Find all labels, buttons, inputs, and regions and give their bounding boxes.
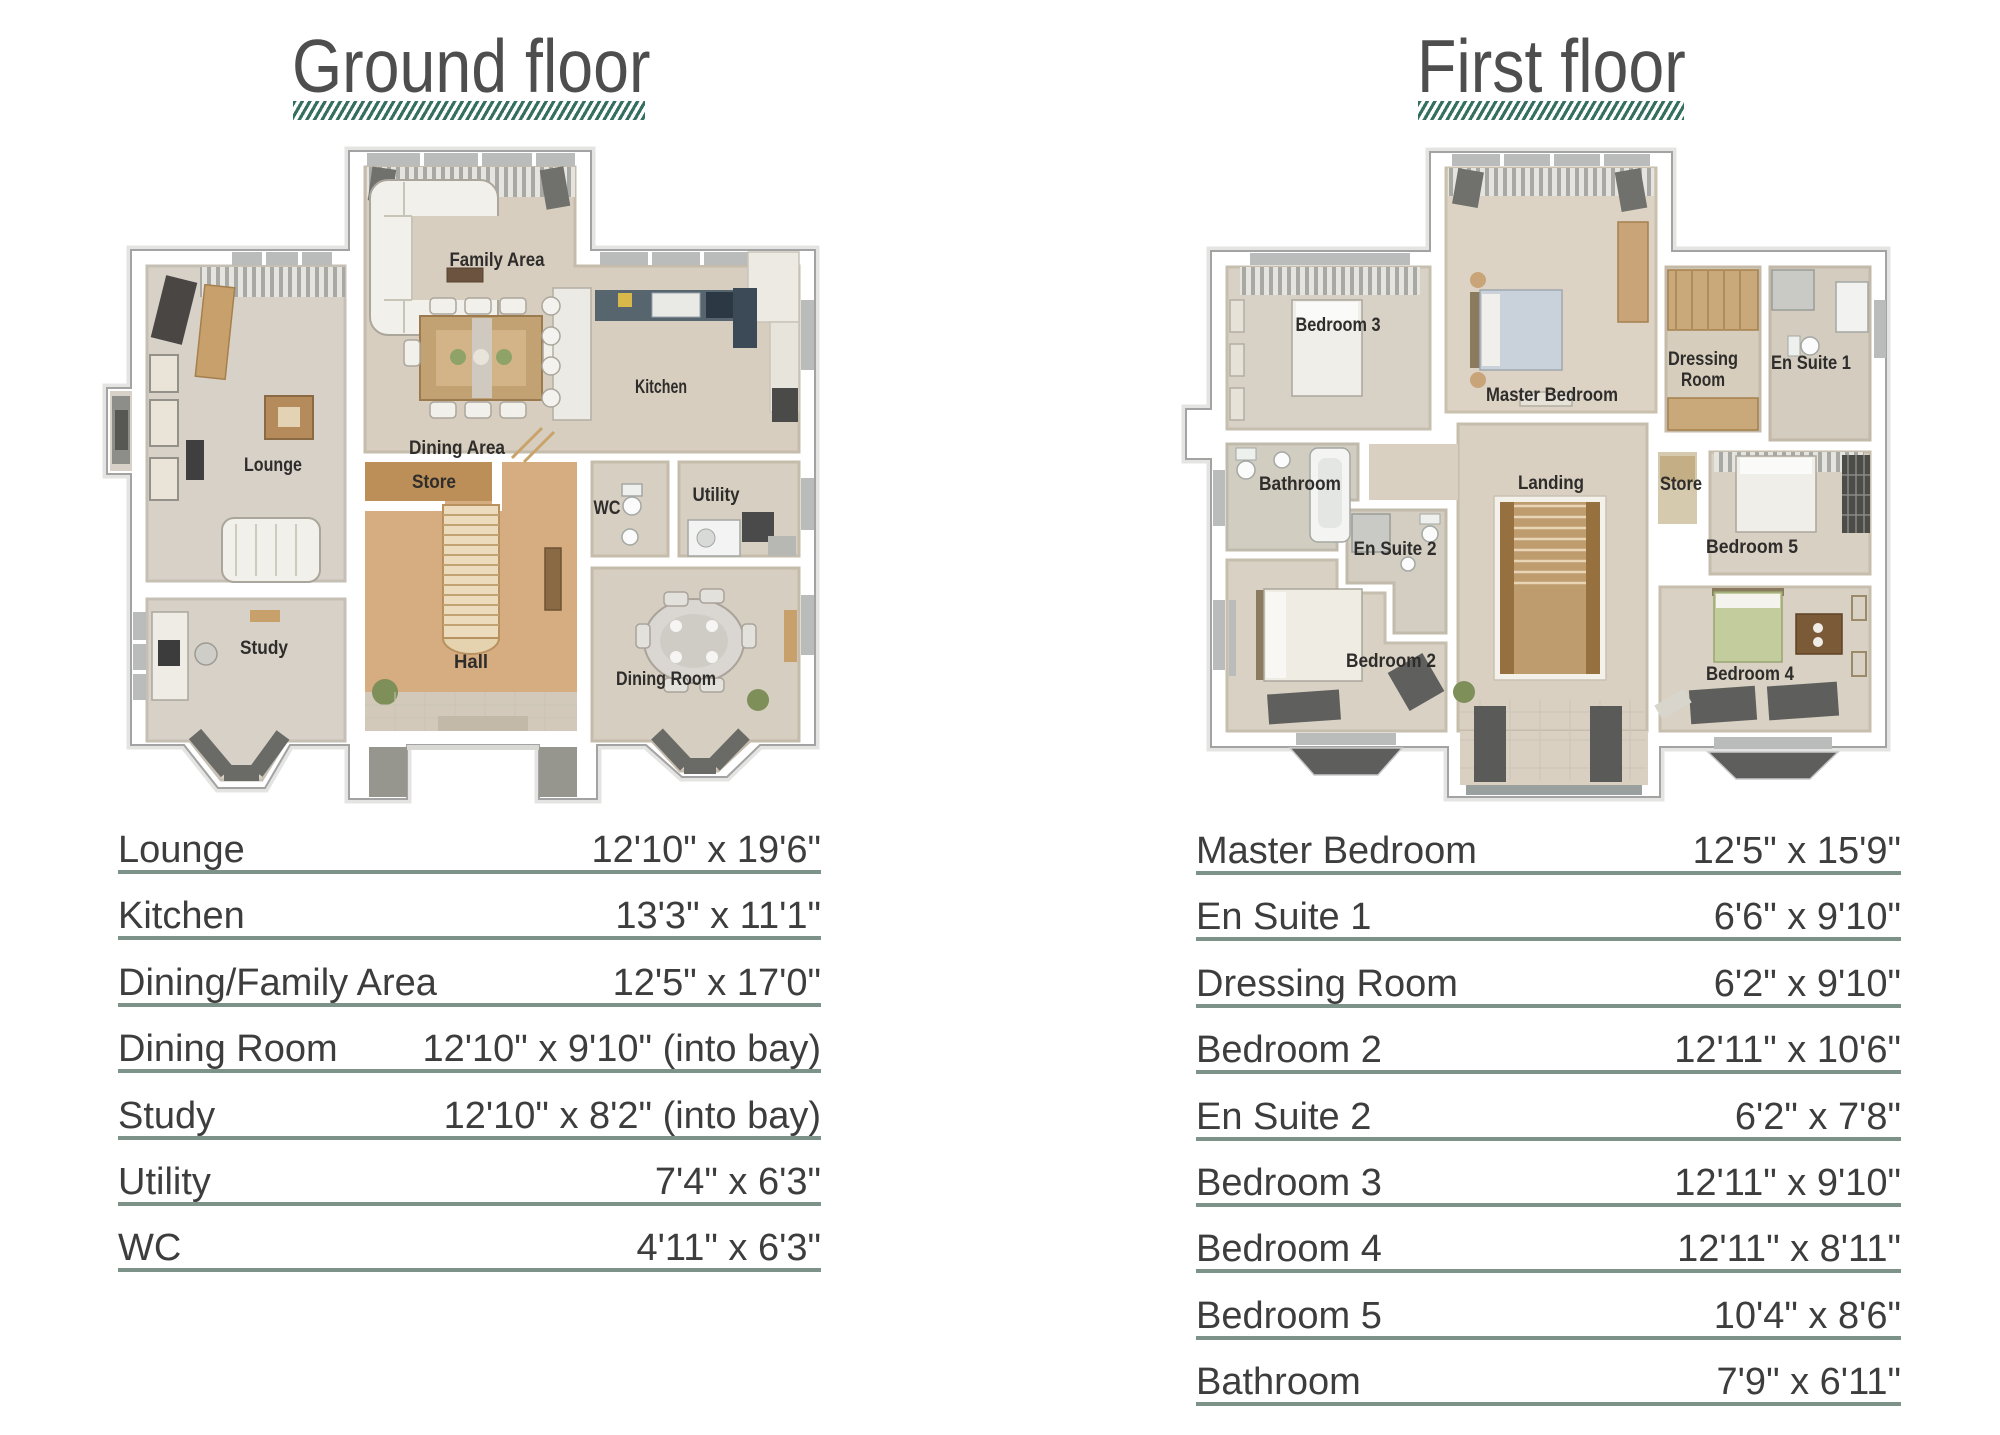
svg-text:Study: Study: [240, 638, 288, 659]
svg-text:Bedroom 5: Bedroom 5: [1706, 537, 1798, 558]
svg-text:Kitchen: Kitchen: [635, 377, 687, 398]
svg-text:Family Area: Family Area: [450, 250, 545, 271]
svg-text:Bedroom 4: Bedroom 4: [1706, 664, 1794, 685]
svg-text:Dining Room: Dining Room: [616, 669, 716, 690]
svg-text:Master Bedroom: Master Bedroom: [1486, 385, 1618, 406]
svg-text:Utility: Utility: [693, 485, 740, 506]
svg-text:Bathroom: Bathroom: [1259, 474, 1341, 495]
svg-text:Hall: Hall: [454, 652, 488, 673]
svg-text:Store: Store: [412, 472, 456, 493]
svg-text:Dressing: Dressing: [1668, 349, 1738, 370]
svg-text:Dining Area: Dining Area: [409, 438, 505, 459]
svg-text:En Suite 2: En Suite 2: [1354, 539, 1437, 560]
svg-text:Landing: Landing: [1518, 473, 1584, 494]
svg-text:Lounge: Lounge: [244, 455, 302, 476]
svg-text:Store: Store: [1660, 474, 1702, 495]
svg-text:Bedroom 2: Bedroom 2: [1346, 651, 1436, 672]
svg-text:WC: WC: [594, 498, 621, 519]
svg-text:Bedroom 3: Bedroom 3: [1296, 315, 1381, 336]
svg-text:Room: Room: [1681, 370, 1725, 391]
svg-text:En Suite 1: En Suite 1: [1771, 353, 1851, 374]
